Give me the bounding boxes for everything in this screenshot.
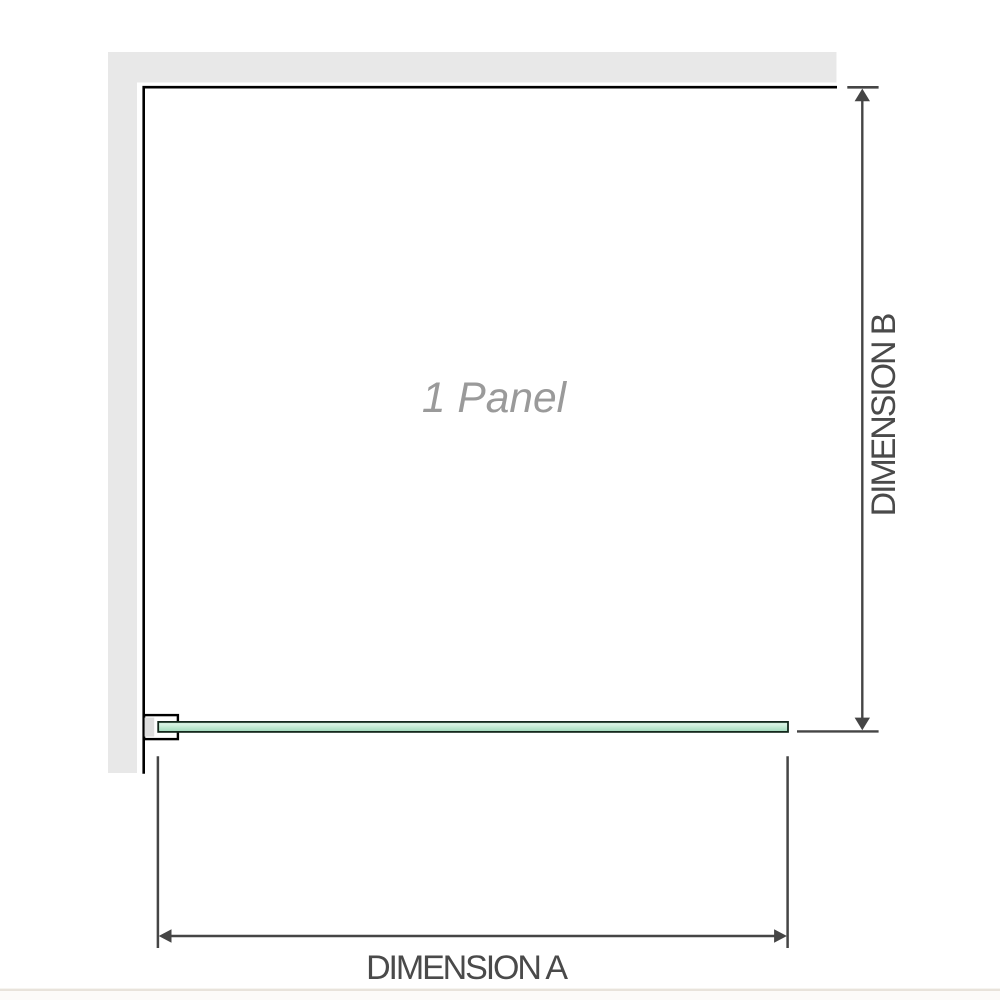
svg-text:DIMENSION A: DIMENSION A: [366, 949, 568, 987]
svg-text:1 Panel: 1 Panel: [422, 375, 568, 422]
svg-text:DIMENSION B: DIMENSION B: [865, 314, 903, 516]
